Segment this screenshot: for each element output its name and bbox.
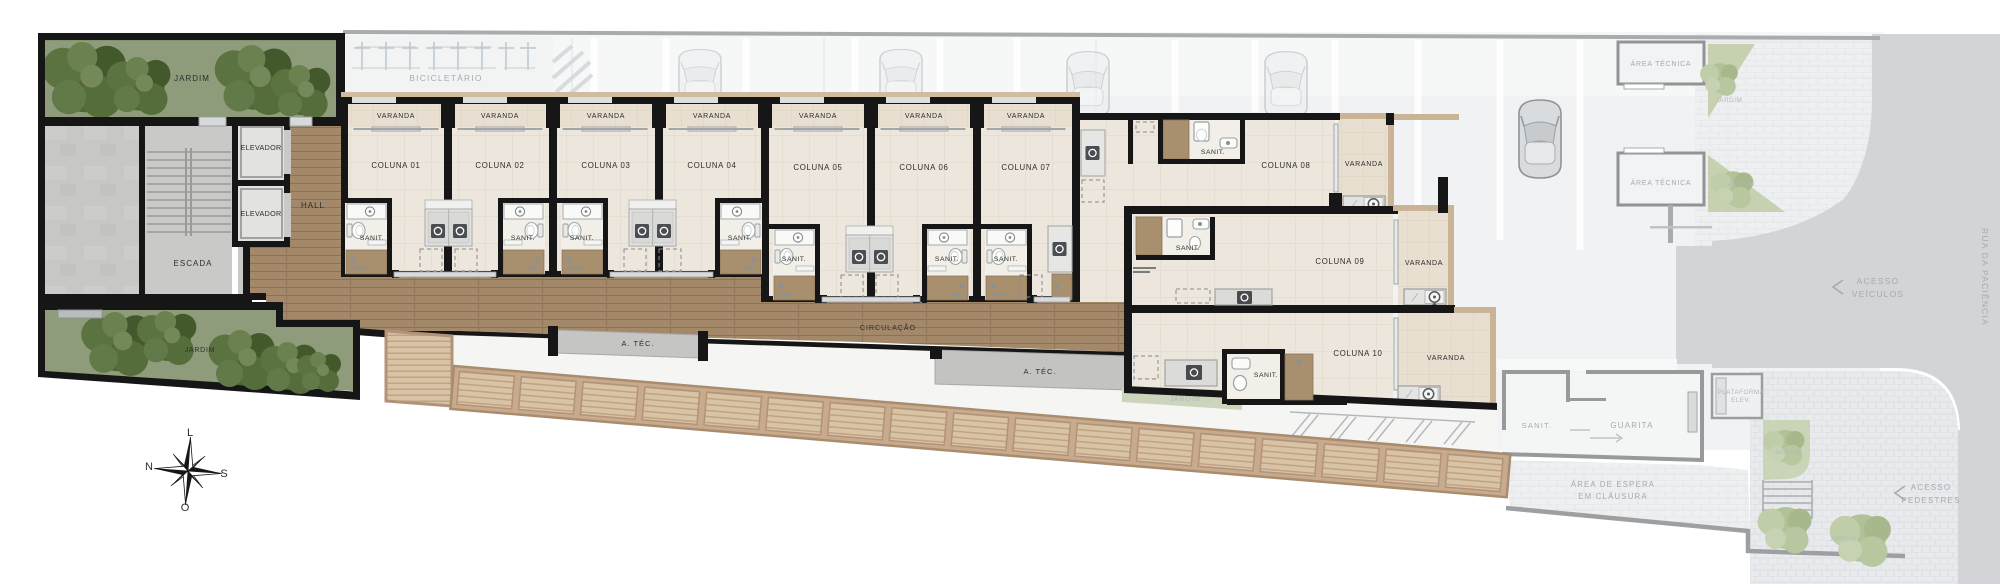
svg-text:ELEVADOR: ELEVADOR xyxy=(240,143,281,152)
svg-text:VARANDA: VARANDA xyxy=(693,113,731,120)
svg-text:JARDIM: JARDIM xyxy=(185,347,215,354)
svg-text:S: S xyxy=(220,468,227,480)
svg-text:VARANDA: VARANDA xyxy=(1405,260,1443,267)
svg-text:COLUNA 01: COLUNA 01 xyxy=(371,161,420,170)
svg-text:ÁREA TÉCNICA: ÁREA TÉCNICA xyxy=(1631,178,1692,187)
svg-text:JARDIM: JARDIM xyxy=(1716,97,1742,104)
svg-text:COLUNA 07: COLUNA 07 xyxy=(1001,163,1050,172)
svg-text:SANIT.: SANIT. xyxy=(570,235,594,242)
svg-text:COLUNA 10: COLUNA 10 xyxy=(1333,349,1382,358)
svg-text:O: O xyxy=(181,502,190,514)
svg-text:VARANDA: VARANDA xyxy=(377,113,415,120)
svg-text:GUARITA: GUARITA xyxy=(1610,421,1653,430)
svg-text:ELEVADOR: ELEVADOR xyxy=(240,209,281,218)
svg-text:CIRCULAÇÃO: CIRCULAÇÃO xyxy=(860,323,916,332)
svg-text:COLUNA 05: COLUNA 05 xyxy=(793,163,842,172)
svg-text:SANIT.: SANIT. xyxy=(1522,421,1553,430)
svg-text:JARDIM: JARDIM xyxy=(1830,536,1856,543)
svg-text:VEÍCULOS: VEÍCULOS xyxy=(1852,289,1905,299)
svg-text:L: L xyxy=(187,427,193,439)
svg-text:ACESSO: ACESSO xyxy=(1911,483,1952,492)
svg-text:BICICLETÁRIO: BICICLETÁRIO xyxy=(409,73,482,83)
svg-text:PEDESTRES: PEDESTRES xyxy=(1901,496,1960,505)
svg-text:ACESSO: ACESSO xyxy=(1857,276,1900,286)
svg-text:N: N xyxy=(145,461,153,473)
svg-text:VARANDA: VARANDA xyxy=(1007,113,1045,120)
svg-text:COLUNA 04: COLUNA 04 xyxy=(687,161,736,170)
svg-text:SANIT.: SANIT. xyxy=(1201,149,1225,156)
svg-text:SANIT.: SANIT. xyxy=(994,256,1018,263)
svg-text:COLUNA 06: COLUNA 06 xyxy=(899,163,948,172)
svg-text:JARDIM: JARDIM xyxy=(1775,449,1801,456)
svg-text:VARANDA: VARANDA xyxy=(587,113,625,120)
svg-text:COLUNA 08: COLUNA 08 xyxy=(1261,161,1310,170)
svg-text:PLATAFORMA: PLATAFORMA xyxy=(1718,389,1765,396)
svg-text:SANIT.: SANIT. xyxy=(1176,245,1200,252)
svg-text:JARDIM: JARDIM xyxy=(174,74,210,83)
svg-text:SANIT.: SANIT. xyxy=(935,256,959,263)
svg-text:ÁREA TÉCNICA: ÁREA TÉCNICA xyxy=(1631,59,1692,68)
svg-text:SANIT.: SANIT. xyxy=(360,235,384,242)
svg-text:SANIT.: SANIT. xyxy=(728,235,752,242)
svg-text:SANIT.: SANIT. xyxy=(511,235,535,242)
svg-text:EM CLÁUSURA: EM CLÁUSURA xyxy=(1578,492,1648,501)
svg-text:ESCADA: ESCADA xyxy=(174,259,213,268)
svg-text:COLUNA 03: COLUNA 03 xyxy=(581,161,630,170)
svg-text:A. TÉC.: A. TÉC. xyxy=(1023,367,1056,376)
svg-text:HALL: HALL xyxy=(301,201,325,210)
svg-text:VARANDA: VARANDA xyxy=(905,113,943,120)
svg-text:ÁREA DE ESPERA: ÁREA DE ESPERA xyxy=(1571,480,1655,489)
svg-text:VARANDA: VARANDA xyxy=(1427,355,1465,362)
svg-text:VARANDA: VARANDA xyxy=(481,113,519,120)
svg-text:SANIT.: SANIT. xyxy=(1254,372,1278,379)
svg-text:COLUNA 02: COLUNA 02 xyxy=(475,161,524,170)
svg-text:JARDIM: JARDIM xyxy=(1728,181,1754,188)
svg-text:VARANDA: VARANDA xyxy=(1345,161,1383,168)
svg-text:SANIT.: SANIT. xyxy=(782,256,806,263)
svg-text:ELEV.: ELEV. xyxy=(1731,397,1751,404)
svg-text:A. TÉC.: A. TÉC. xyxy=(621,339,654,348)
svg-text:RUA DA PACIÊNCIA: RUA DA PACIÊNCIA xyxy=(1980,228,1990,326)
svg-text:COLUNA 09: COLUNA 09 xyxy=(1315,257,1364,266)
svg-text:VARANDA: VARANDA xyxy=(799,113,837,120)
